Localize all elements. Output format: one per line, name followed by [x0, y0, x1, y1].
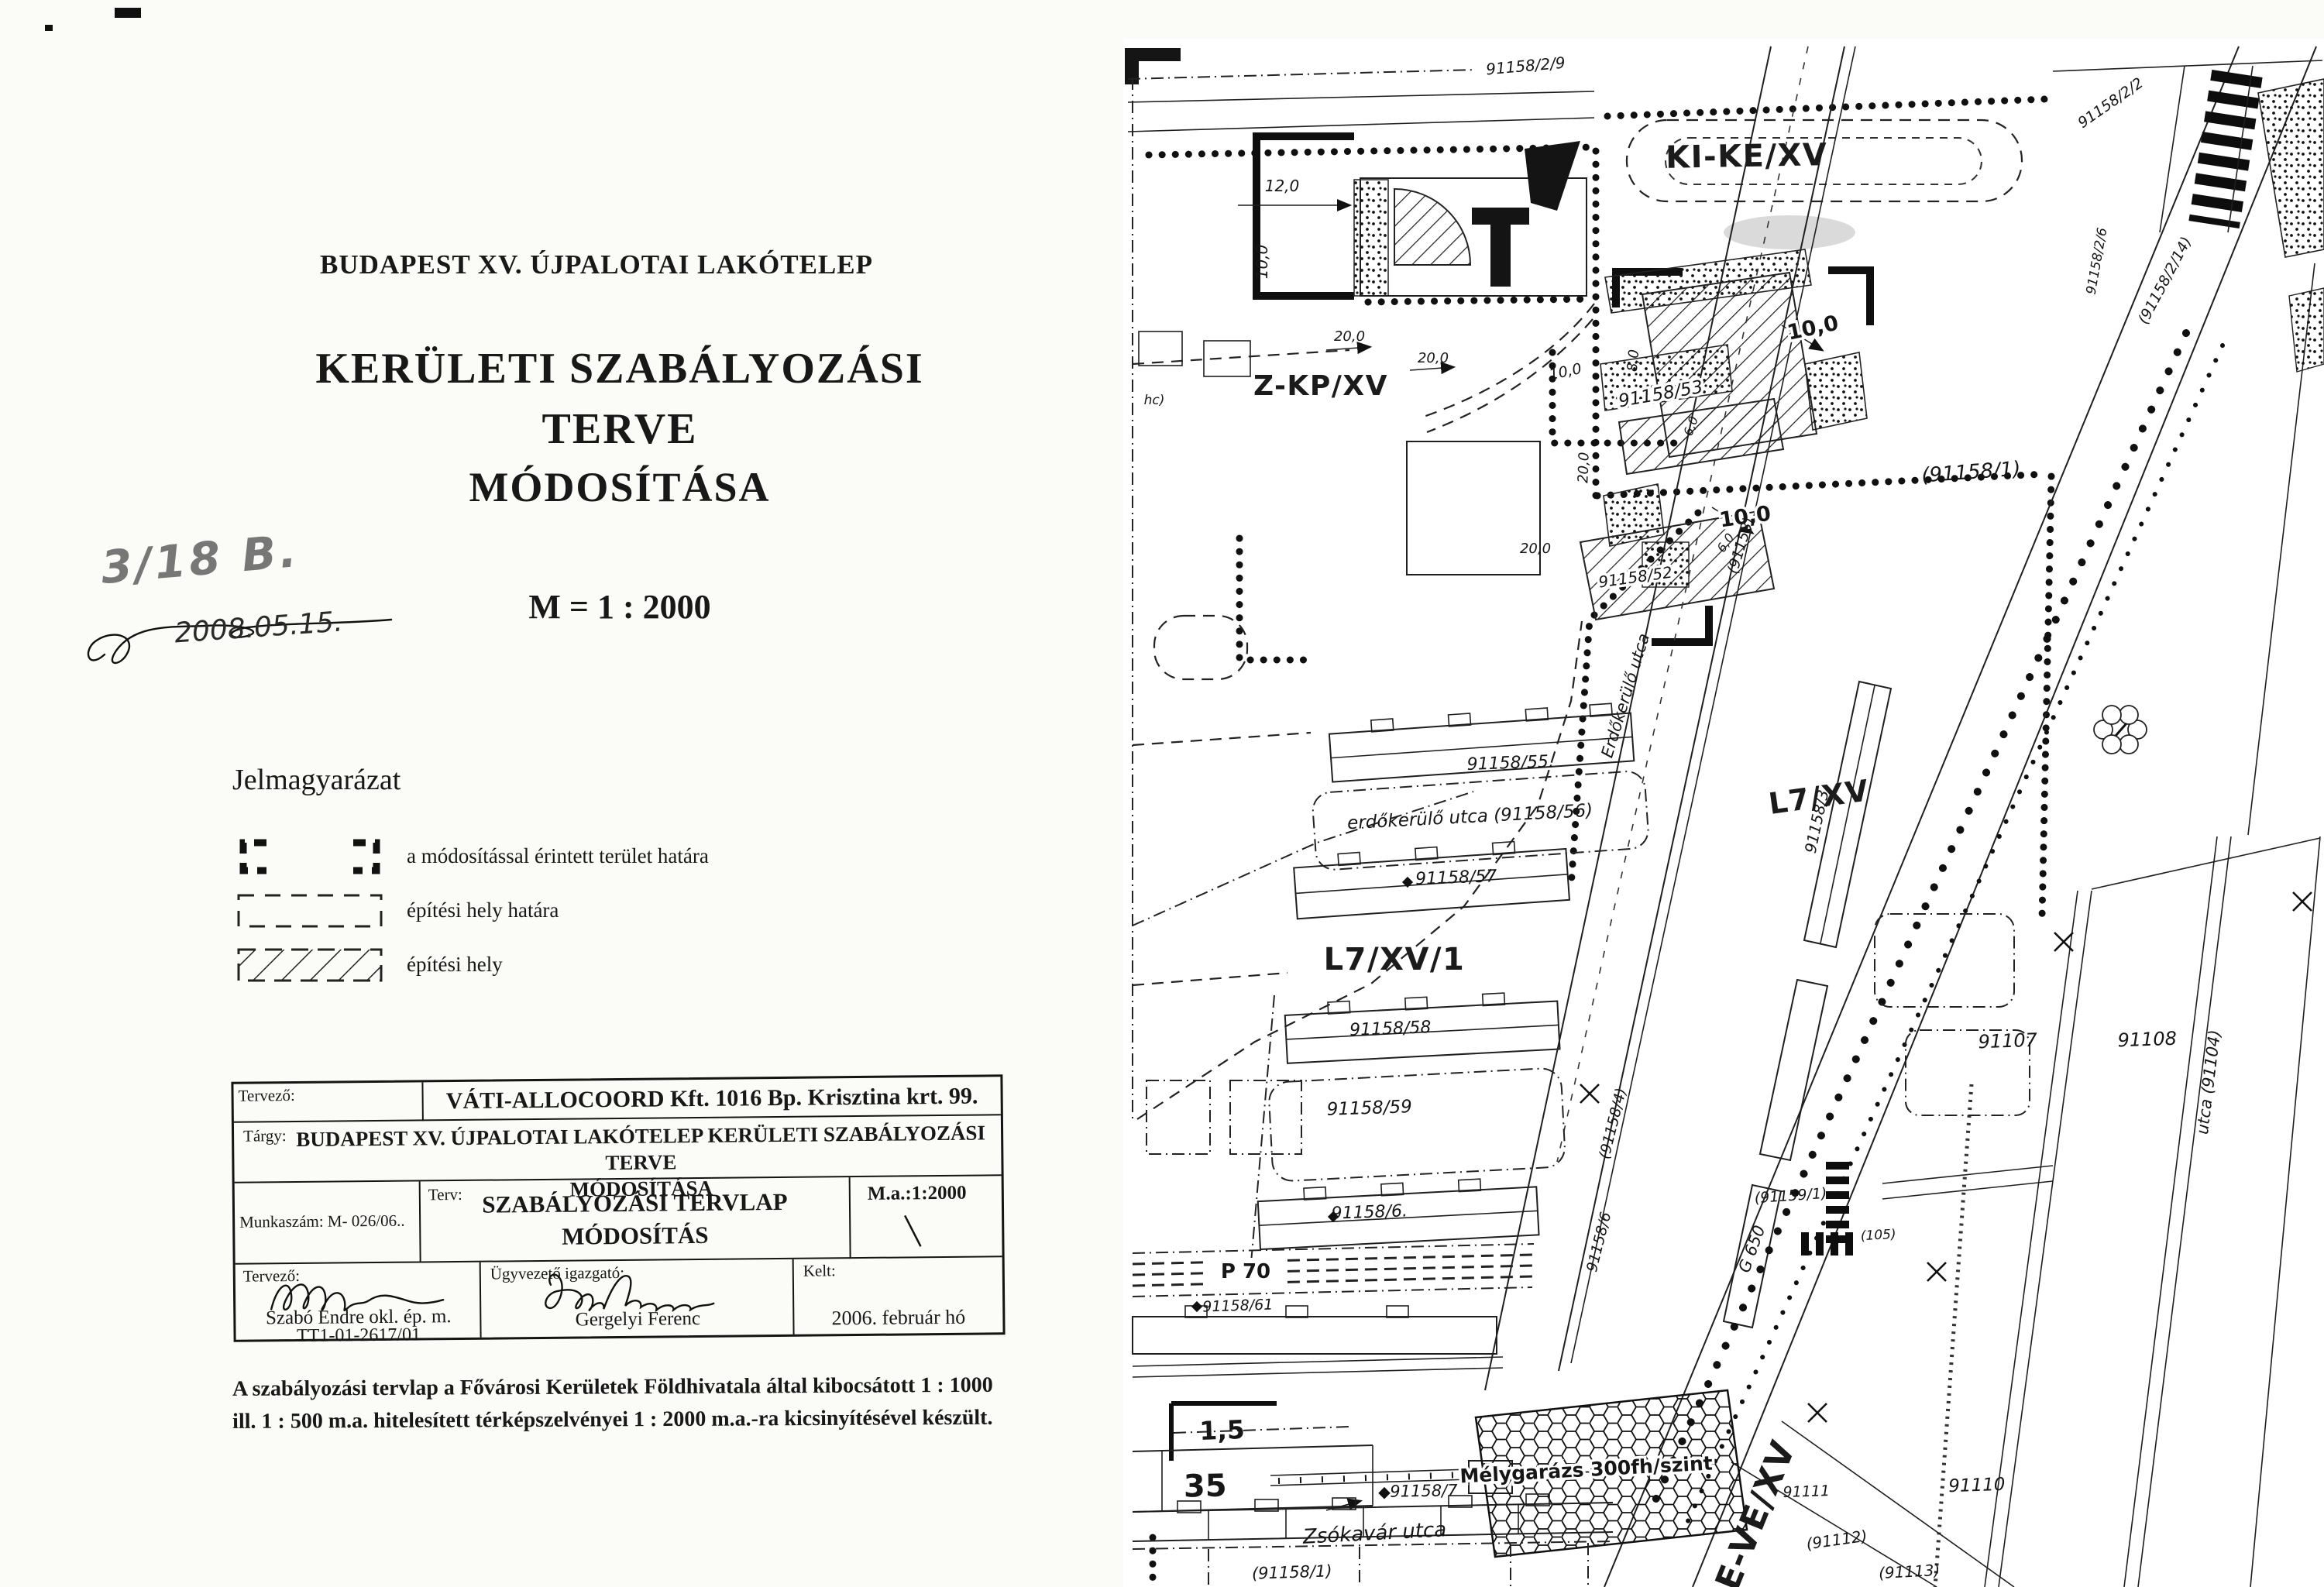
footnote-line-1: A szabályozási tervlap a Fővárosi Kerüle…: [232, 1369, 1100, 1406]
dimension-label: 8,0: [1624, 349, 1642, 372]
parcel-label: hc): [1144, 393, 1165, 408]
parcel-label: 91158/7: [1390, 1481, 1458, 1501]
titleblock-subject: Tárgy: BUDAPEST XV. ÚJPALOTAI LAKÓTELEP …: [234, 1115, 1002, 1183]
titleblock-company: VÁTI-ALLOCOORD Kft. 1016 Bp. Krisztina k…: [423, 1077, 1000, 1121]
dimension-label: 20,0: [1575, 452, 1592, 483]
title-block: Tervező: VÁTI-ALLOCOORD Kft. 1016 Bp. Kr…: [231, 1074, 1005, 1342]
titleblock-date: Kelt: 2006. február hó: [794, 1257, 1003, 1335]
document-heading: KERÜLETI SZABÁLYOZÁSI TERVE MÓDOSÍTÁSA: [232, 347, 1007, 508]
footnote-line-2: ill. 1 : 500 m.a. hitelesített térképsze…: [232, 1401, 1100, 1438]
scan-artifact: [45, 25, 53, 31]
director-name: Gergelyi Ferenc: [481, 1307, 794, 1332]
plan-label: Terv:: [424, 1183, 467, 1207]
dimension-label: 20,0: [1418, 350, 1449, 366]
titleblock-designer-sign: Tervező: Szabó Endre okl. ép. m. TT1-01-…: [235, 1262, 482, 1340]
value-label: 1,5: [1199, 1414, 1246, 1446]
parcel-label: 91110: [1948, 1475, 2006, 1497]
legend-label: építési hely határa: [407, 898, 559, 922]
legend-symbol-building-site-boundary: [232, 889, 387, 933]
parcel-label: 91108: [2117, 1028, 2177, 1052]
legend-symbol-building-site: [232, 943, 387, 987]
legend-label: építési hely: [407, 953, 503, 977]
parcel-label: (91158/1): [1252, 1561, 1332, 1583]
scan-artifact: [115, 8, 141, 18]
dimension-label: 20,0: [1520, 541, 1551, 557]
heading-line-1: KERÜLETI SZABÁLYOZÁSI: [232, 347, 1007, 390]
parcel-label: 91158/55.: [1466, 752, 1554, 775]
titleblock-job-number: Munkaszám: M- 026/06..: [235, 1181, 421, 1264]
parcel-label: 91158/59: [1326, 1097, 1412, 1120]
titleblock-director-sign: Ügyvezető igazgató: Gergelyi Ferenc: [481, 1259, 795, 1338]
zone-label-ki-ke: KI-KE/XV: [1666, 137, 1828, 176]
document-title: BUDAPEST XV. ÚJPALOTAI LAKÓTELEP: [240, 249, 953, 280]
footnote: A szabályozási tervlap a Fővárosi Kerüle…: [232, 1369, 1100, 1438]
zoning-map: 91158/2/9 12,0 10,0 KI-KE/XV 91158/2/2 (…: [1123, 39, 2324, 1587]
legend-symbol-modification-boundary: [232, 835, 387, 878]
legend-item-building-site: építési hely: [232, 943, 930, 990]
legend-item-building-site-boundary: építési hely határa: [232, 889, 930, 936]
parcel-label: (105): [1860, 1227, 1896, 1244]
zone-label-l7-1: L7/XV/1: [1324, 942, 1466, 977]
parcel-label: (91113): [1878, 1561, 1940, 1582]
subject-label: Tárgy:: [239, 1124, 291, 1149]
scanned-plan-sheet: { "page": { "title_line": "BUDAPEST XV. …: [0, 0, 2324, 1587]
director-signature: [528, 1267, 761, 1313]
legend-label: a módosítással érintett terület határa: [407, 844, 709, 868]
date-value: 2006. február hó: [794, 1305, 1002, 1331]
subject-line-1: BUDAPEST XV. ÚJPALOTAI LAKÓTELEP KERÜLET…: [288, 1120, 994, 1179]
plan-name-line-2: MÓDOSÍTÁS: [421, 1218, 849, 1254]
dimension-label: 20,0: [1334, 328, 1365, 345]
titleblock-scale: M.a.:1:2000: [851, 1176, 1002, 1259]
parking-label: P 70: [1221, 1260, 1270, 1283]
heading-line-3: MÓDOSÍTÁSA: [232, 466, 1007, 508]
legend-item-modification-boundary: a módosítással érintett terület határa: [232, 835, 930, 881]
heading-line-2: TERVE: [232, 407, 1007, 451]
parcel-label: 91107: [1978, 1029, 2038, 1053]
handwritten-file-number: 3/18 B.: [99, 524, 302, 594]
dimension-label: 10,0: [1253, 245, 1271, 280]
parcel-label: 91158/6.: [1331, 1201, 1408, 1223]
pen-stroke: [897, 1211, 944, 1251]
legend-heading: Jelmagyarázat: [232, 763, 401, 797]
dimension-label: 12,0: [1265, 177, 1300, 195]
parcel-label: 91158/61: [1202, 1296, 1274, 1315]
parcel-label: 91111: [1783, 1482, 1830, 1501]
plan-name-line-1: SZABÁLYOZÁSI TERVLAP: [421, 1185, 849, 1221]
value-label: 35: [1184, 1468, 1227, 1505]
titleblock-designer-label: Tervező:: [233, 1082, 423, 1122]
parcel-label: 91158/58: [1349, 1018, 1432, 1040]
designer-license: TT1-01-2617/01: [235, 1324, 481, 1348]
parcel-label: 91158/57: [1415, 867, 1497, 889]
zone-label-z-kp: Z-KP/XV: [1253, 370, 1388, 402]
titleblock-plan-name: Terv: SZABÁLYOZÁSI TERVLAP MÓDOSÍTÁS: [421, 1177, 851, 1262]
